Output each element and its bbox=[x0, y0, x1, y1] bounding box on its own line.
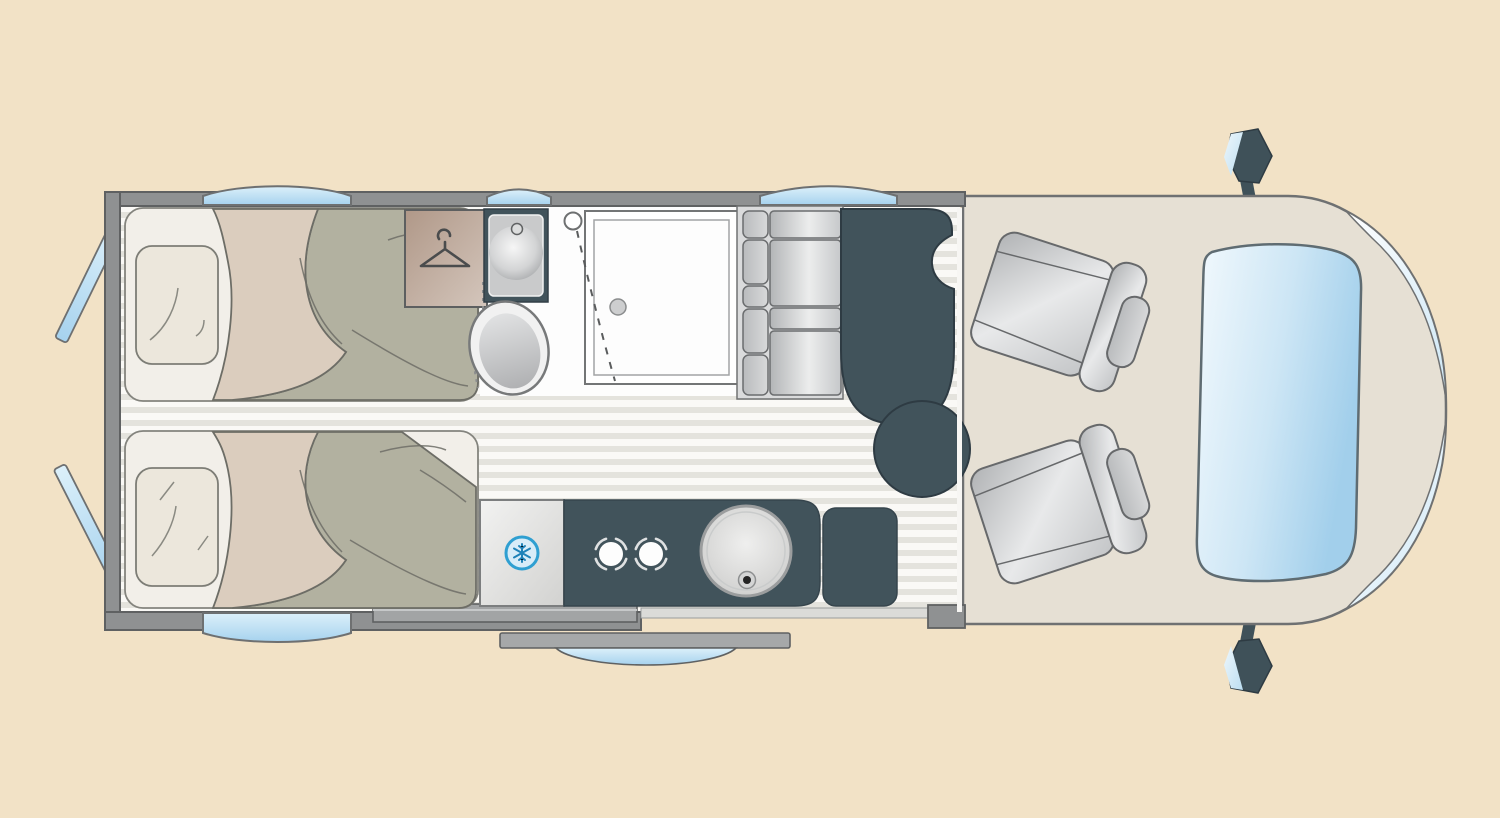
floor-joint bbox=[957, 208, 962, 612]
stove-burner-left bbox=[596, 539, 626, 569]
floorplan-canvas bbox=[0, 0, 1500, 818]
living-module bbox=[105, 186, 970, 642]
pillow bbox=[136, 246, 218, 364]
bench-seat bbox=[737, 206, 843, 399]
windshield bbox=[1197, 244, 1361, 581]
sink-drain bbox=[743, 576, 751, 584]
shower-tray bbox=[565, 211, 739, 384]
kitchen-sink bbox=[701, 506, 791, 596]
tabletop bbox=[841, 209, 954, 424]
snowflake-icon bbox=[506, 537, 538, 569]
single-bed-bottom bbox=[125, 431, 478, 608]
doorway-threshold bbox=[641, 608, 930, 618]
vanity-sink bbox=[484, 209, 548, 302]
faucet bbox=[512, 224, 523, 235]
window-bottom-rear bbox=[203, 613, 351, 642]
shower-door-pivot bbox=[565, 213, 582, 230]
table-extension bbox=[874, 401, 970, 497]
refrigerator bbox=[480, 500, 564, 606]
shower-drain bbox=[610, 299, 626, 315]
cab-section bbox=[963, 196, 1446, 624]
wall-rear bbox=[105, 192, 120, 630]
pillow bbox=[136, 468, 218, 586]
stove-burner-right bbox=[636, 539, 666, 569]
kitchen-side-cabinet bbox=[823, 508, 897, 606]
kitchen bbox=[480, 500, 897, 606]
